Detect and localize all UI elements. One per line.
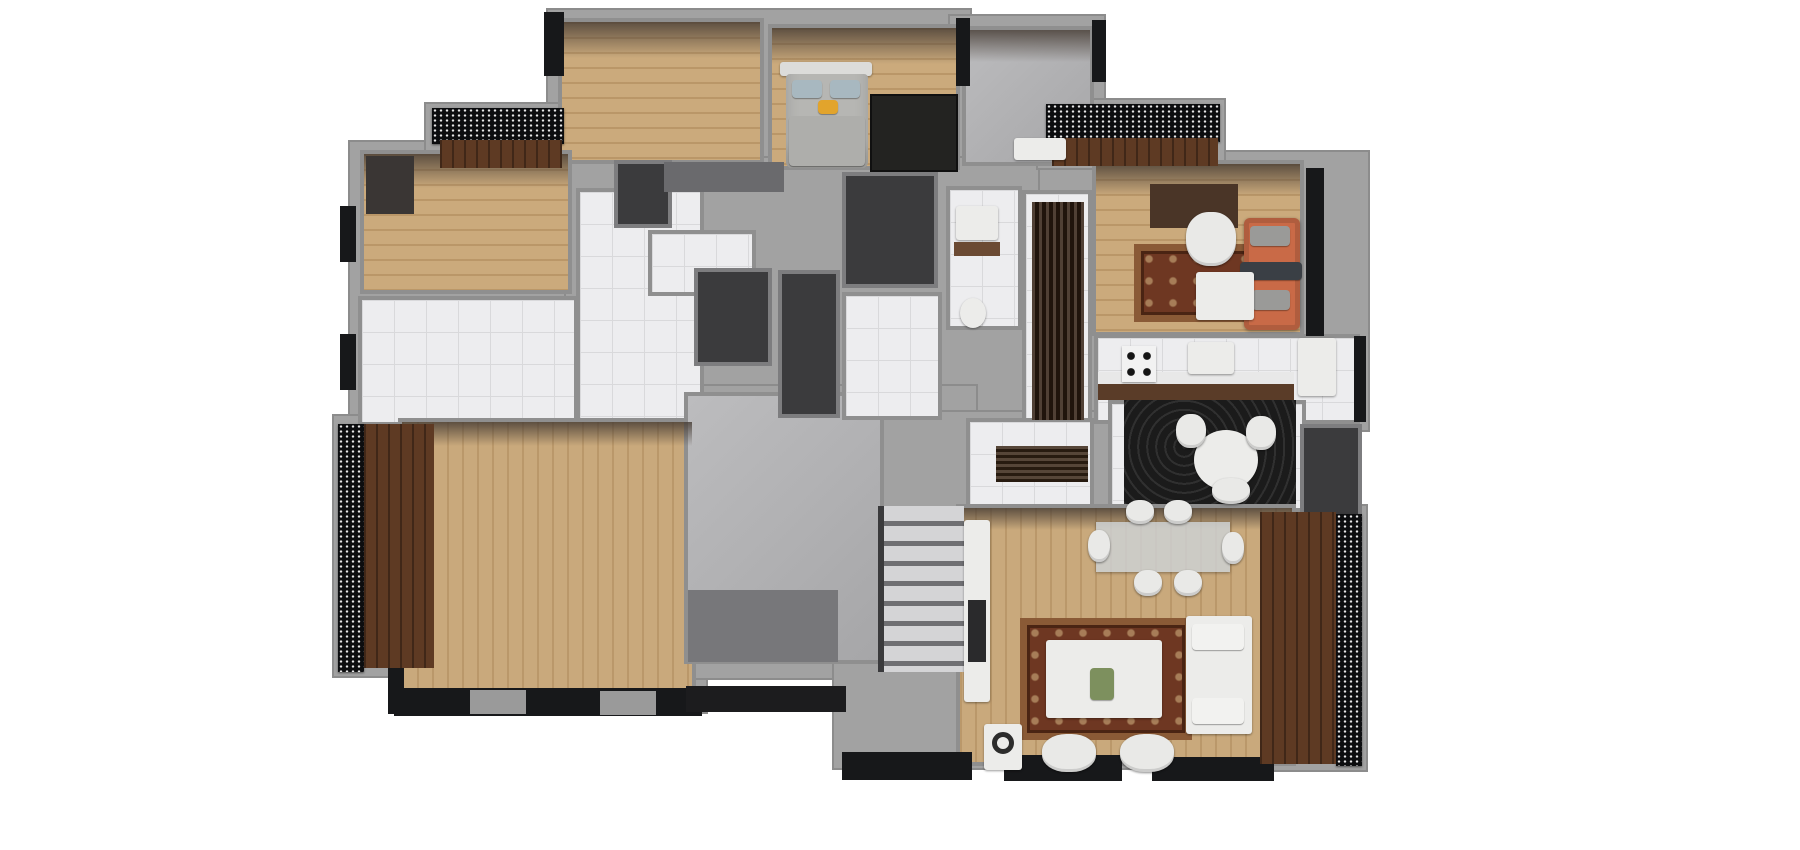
toilet-bath-c xyxy=(960,298,986,328)
sofa-br-pillow-1 xyxy=(1192,624,1244,650)
chair-dining-n1 xyxy=(1176,414,1206,448)
exterior-corner-bl xyxy=(388,662,404,714)
exterior-left-1 xyxy=(340,206,356,262)
bed-pillow-2 xyxy=(830,80,860,98)
dchair-br-5 xyxy=(1088,530,1110,562)
room-bath-r-dark xyxy=(1300,424,1362,518)
exterior-bottom-br-1 xyxy=(842,752,972,780)
chair-dining-n2 xyxy=(1246,416,1276,450)
exterior-divider-top xyxy=(956,18,970,86)
room-closet-c xyxy=(842,172,938,288)
window-gap-2 xyxy=(600,691,656,715)
wall-shade-nw xyxy=(562,22,760,58)
bed-pillow-1 xyxy=(792,80,822,98)
rug-bedroom-n xyxy=(872,96,956,170)
counter-bath-c xyxy=(954,242,1000,256)
sofa-br-pillow-2 xyxy=(1192,698,1244,724)
dchair-br-6 xyxy=(1222,532,1244,564)
armchair-br-1 xyxy=(1042,734,1096,772)
wall-shade-sw xyxy=(402,422,692,446)
dchair-br-2 xyxy=(1164,500,1192,524)
staircase-steps xyxy=(878,506,964,672)
stove-r xyxy=(1122,346,1156,382)
balcony-floor-top-right xyxy=(1052,138,1218,166)
chair-dining-n3 xyxy=(1212,478,1250,504)
armchair-br-2 xyxy=(1120,734,1174,772)
balcony-railing-top-left xyxy=(432,108,564,144)
dining-table-br xyxy=(1096,522,1230,572)
tv-media-br xyxy=(968,600,986,662)
exterior-left-2 xyxy=(340,334,356,390)
exterior-corner-top-right xyxy=(1092,20,1106,82)
bed-accent-pillow xyxy=(818,100,838,114)
sink-bath-c xyxy=(956,206,998,240)
window-gap-1 xyxy=(470,690,526,714)
bench-ne xyxy=(1014,138,1066,160)
kitchen-r-counterbase xyxy=(1098,384,1294,400)
floorplan-render xyxy=(0,0,1800,850)
room-elevator-b xyxy=(778,270,840,418)
exterior-windows-right xyxy=(1306,168,1324,336)
doormat-foyer-br xyxy=(996,446,1088,482)
sink-kitchen-r xyxy=(1188,342,1234,374)
stair-lower-shadow xyxy=(688,590,838,662)
runner-hall-r xyxy=(1032,202,1084,420)
decor-plant-br xyxy=(1090,668,1114,700)
room-kitchen-w xyxy=(358,296,578,426)
dchair-br-1 xyxy=(1126,500,1154,524)
coffee-table-r xyxy=(1196,272,1254,320)
wall-shade-ne xyxy=(966,30,1090,62)
room-hall-c-patch xyxy=(842,292,942,420)
bed-blanket xyxy=(789,116,865,166)
armchair-r xyxy=(1186,212,1236,266)
sofa-orange-pillow-2 xyxy=(1252,290,1290,310)
room-living-sw xyxy=(398,418,696,706)
balcony-railing-left xyxy=(338,424,364,672)
balcony-floor-right xyxy=(1260,512,1336,764)
balcony-railing-right xyxy=(1336,514,1362,766)
sofa-orange-pillow-1 xyxy=(1250,226,1290,246)
balcony-floor-top-left xyxy=(440,140,562,168)
dchair-br-3 xyxy=(1134,570,1162,596)
dchair-br-4 xyxy=(1174,570,1202,596)
balcony-floor-left xyxy=(364,424,434,668)
headphones-stand xyxy=(992,732,1014,754)
fridge-r xyxy=(1298,338,1336,396)
room-elevator-a xyxy=(694,268,772,366)
wall-shade-n xyxy=(772,28,956,64)
exterior-corner-top-left xyxy=(544,12,564,76)
stair-base-dark xyxy=(686,686,846,712)
wardrobe-w xyxy=(366,156,414,214)
core-top-band xyxy=(664,162,784,192)
balcony-railing-top-right xyxy=(1046,104,1220,142)
exterior-right-kitchen xyxy=(1354,336,1366,422)
